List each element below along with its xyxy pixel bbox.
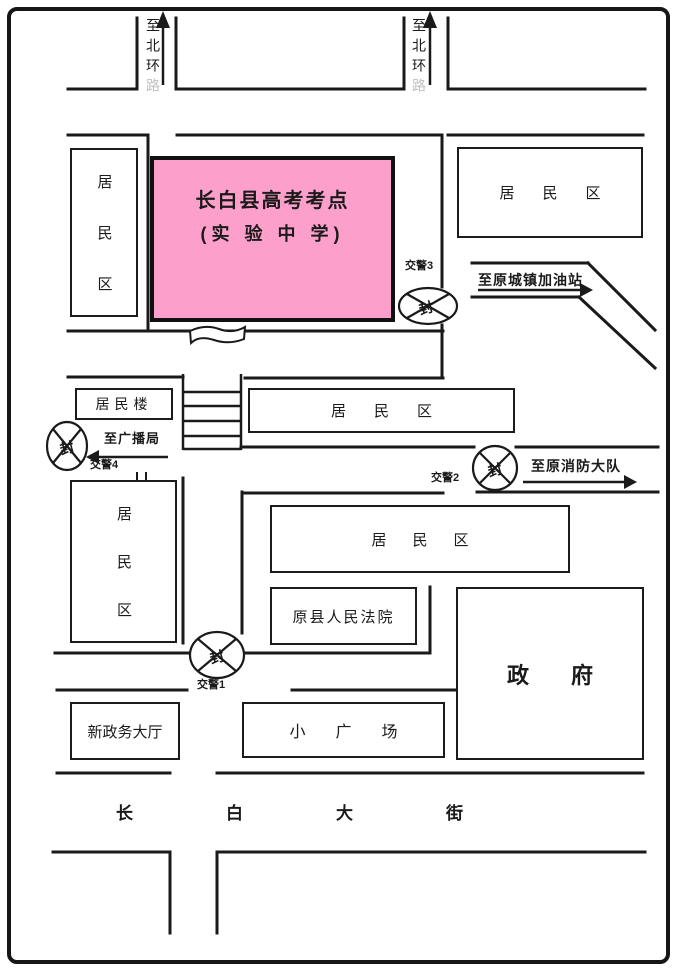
exam-site-title: 长白县高考考点 <box>196 184 350 213</box>
checkpoint1-label: 交警1 <box>197 676 225 692</box>
building-label: 新政务大厅 <box>87 721 162 742</box>
direction-broadcast: 至广播局 <box>104 428 160 447</box>
exam-site-subtitle: (实 验 中 学) <box>201 220 345 246</box>
building-label: 居民区 <box>331 400 460 421</box>
building-residential-lower-left: 居民区 <box>70 480 177 643</box>
building-exam-site: 长白县高考考点 (实 验 中 学) <box>150 156 395 322</box>
building-plaza: 小广场 <box>242 702 445 758</box>
building-label: 原县人民法院 <box>292 606 394 627</box>
building-residential-left-top: 居民区 <box>70 148 138 317</box>
building-label: 居民区 <box>499 182 628 203</box>
building-residential-lower-mid: 居民区 <box>270 505 570 573</box>
direction-north-right: 至北环路 <box>410 18 428 98</box>
building-label: 居民区 <box>113 506 134 650</box>
checkpoint2-label: 交警2 <box>431 469 459 485</box>
building-government: 政府 <box>456 587 644 760</box>
street-name-changbai-avenue: 长白大街 <box>116 799 556 824</box>
building-residential-building: 居民楼 <box>75 388 173 420</box>
checkpoint4-label: 交警4 <box>90 456 118 472</box>
direction-text-faded: 路 <box>411 78 427 98</box>
building-label: 政府 <box>507 658 635 690</box>
building-label: 居民区 <box>371 529 494 550</box>
map-canvas: 居民区 长白县高考考点 (实 验 中 学) 居民区 居民楼 居民区 居民区 居民… <box>0 0 677 971</box>
direction-fire-brigade: 至原消防大队 <box>531 456 621 476</box>
building-label: 居民楼 <box>96 394 153 414</box>
direction-gas-station: 至原城镇加油站 <box>478 270 583 290</box>
building-label: 居民区 <box>94 174 115 327</box>
building-new-hall: 新政务大厅 <box>70 702 180 760</box>
building-residential-right-top: 居民区 <box>457 147 643 238</box>
direction-text: 至北环 <box>411 18 427 78</box>
direction-text: 至北环 <box>145 18 161 78</box>
building-residential-mid: 居民区 <box>248 388 515 433</box>
direction-north-left: 至北环路 <box>144 18 162 98</box>
direction-text-faded: 路 <box>145 78 161 98</box>
building-court: 原县人民法院 <box>270 587 417 645</box>
checkpoint3-label: 交警3 <box>405 257 433 273</box>
building-label: 小广场 <box>289 718 427 742</box>
